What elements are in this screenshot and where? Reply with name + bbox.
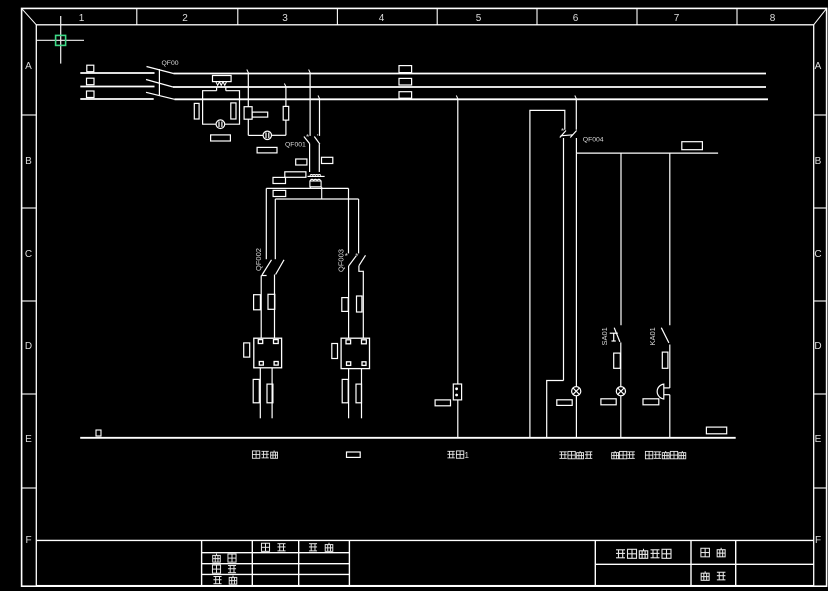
svg-text:E: E [25,434,32,445]
svg-text:1: 1 [79,13,85,24]
svg-text:C: C [25,249,32,260]
svg-text:4: 4 [379,13,385,24]
svg-text:8: 8 [770,13,776,24]
svg-text:C: C [814,249,821,260]
svg-text:B: B [25,156,32,167]
svg-text:QF004: QF004 [583,137,604,144]
svg-text:D: D [814,341,821,352]
svg-text:QF002: QF002 [254,248,263,271]
svg-text:A: A [815,61,822,72]
svg-text:QF003: QF003 [337,249,346,272]
svg-text:D: D [25,341,32,352]
svg-text:6: 6 [573,13,579,24]
svg-text:KA01: KA01 [648,327,657,345]
svg-text:3: 3 [282,13,288,24]
svg-text:2: 2 [182,13,188,24]
svg-text:*: * [561,127,564,136]
svg-text:QF001: QF001 [285,142,306,149]
svg-text:F: F [815,535,821,546]
svg-text:F: F [25,535,31,546]
svg-text:5: 5 [476,13,482,24]
svg-text:1: 1 [465,451,470,460]
svg-text:QF00: QF00 [162,60,179,67]
svg-text:SA01: SA01 [600,327,609,345]
svg-text:*: * [355,252,358,261]
svg-text:*: * [306,133,309,142]
svg-text:E: E [815,434,822,445]
svg-text:A: A [25,61,32,72]
svg-text:B: B [815,156,822,167]
svg-text:7: 7 [674,13,680,24]
